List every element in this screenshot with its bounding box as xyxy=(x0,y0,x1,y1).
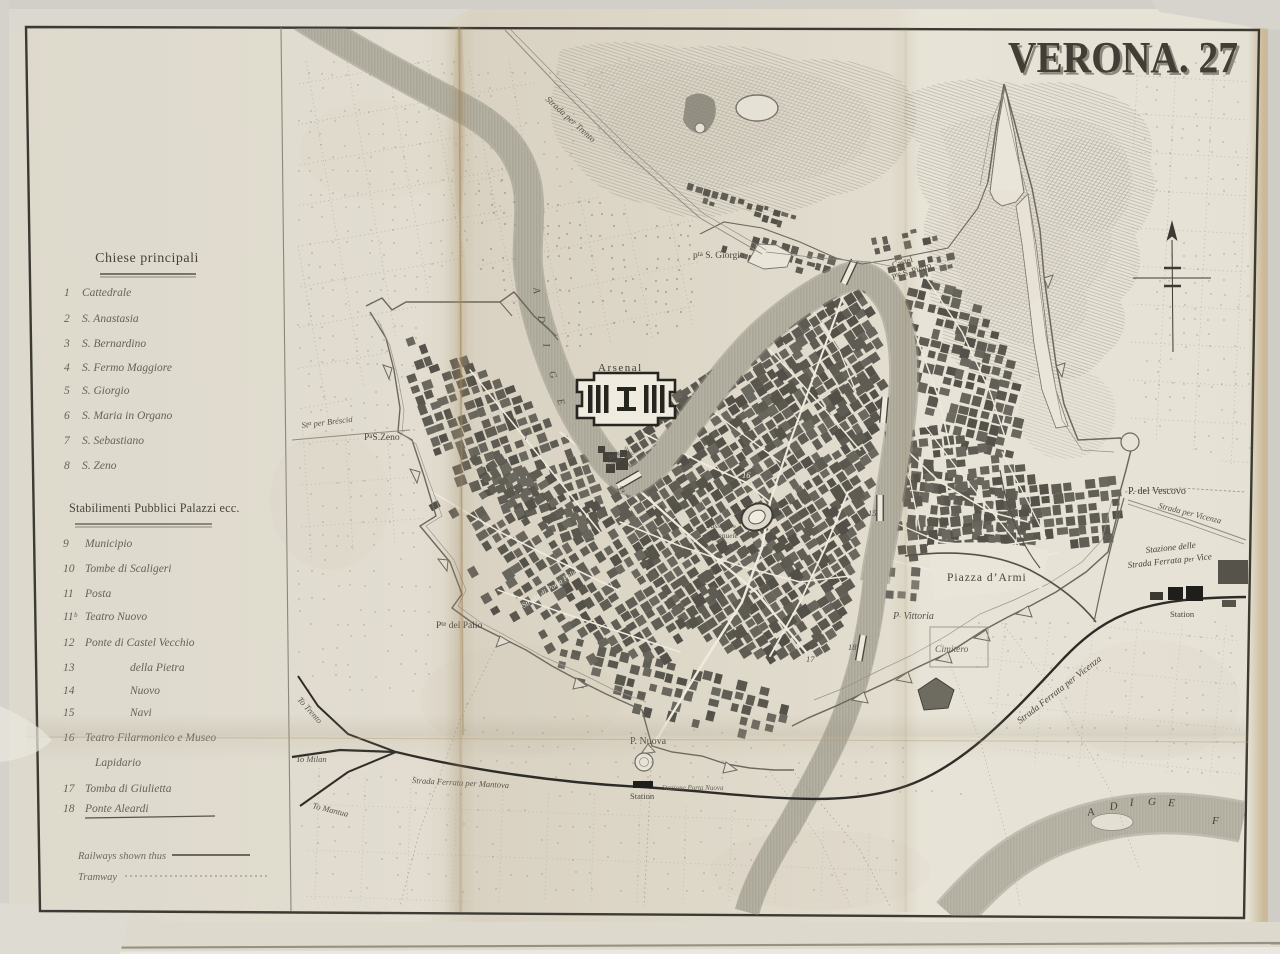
svg-text:Municipio: Municipio xyxy=(84,538,133,550)
svg-text:18: 18 xyxy=(848,642,857,652)
svg-text:18: 18 xyxy=(63,803,75,815)
svg-text:3: 3 xyxy=(63,338,70,350)
svg-text:Stabilimenti Pubblici Palazzi: Stabilimenti Pubblici Palazzi ecc. xyxy=(69,501,240,515)
svg-text:Stazione Porta Nuova: Stazione Porta Nuova xyxy=(662,784,724,792)
svg-text:S. Giorgio: S. Giorgio xyxy=(82,385,130,397)
svg-text:Chiese principali: Chiese principali xyxy=(95,251,199,266)
svg-text:Tomba di Giulietta: Tomba di Giulietta xyxy=(85,783,172,795)
svg-text:16: 16 xyxy=(742,470,751,480)
svg-text:Station: Station xyxy=(630,791,655,801)
svg-text:17: 17 xyxy=(806,654,815,664)
svg-text:1: 1 xyxy=(64,287,70,299)
svg-text:5: 5 xyxy=(64,385,70,397)
svg-text:Cattedrale: Cattedrale xyxy=(82,287,131,299)
svg-text:Emanuele: Emanuele xyxy=(707,531,739,540)
svg-text:Arsenal: Arsenal xyxy=(598,362,643,374)
svg-text:P. del Vescovo: P. del Vescovo xyxy=(1128,486,1186,497)
svg-text:S. Maria in Organo: S. Maria in Organo xyxy=(82,410,173,422)
svg-text:Cimitero: Cimitero xyxy=(935,645,969,655)
svg-text:S. Sebastiano: S. Sebastiano xyxy=(82,435,144,447)
svg-text:9: 9 xyxy=(63,538,69,550)
svg-text:14: 14 xyxy=(63,685,75,697)
svg-text:D: D xyxy=(1108,800,1118,813)
svg-text:Posta: Posta xyxy=(84,588,111,600)
svg-text:G: G xyxy=(1148,796,1156,808)
svg-text:S. Zeno: S. Zeno xyxy=(82,460,117,472)
svg-text:4: 4 xyxy=(64,362,70,374)
svg-text:2: 2 xyxy=(64,313,70,325)
svg-text:S. Fermo Maggiore: S. Fermo Maggiore xyxy=(82,362,172,374)
svg-text:17: 17 xyxy=(63,783,76,795)
svg-text:Nuovo: Nuovo xyxy=(129,685,160,697)
svg-text:Teatro Nuovo: Teatro Nuovo xyxy=(85,611,147,623)
svg-text:S. Bernardino: S. Bernardino xyxy=(82,338,146,350)
svg-text:Tramway: Tramway xyxy=(78,872,117,883)
svg-text:VERONA. 27: VERONA. 27 xyxy=(1008,33,1238,82)
svg-text:10: 10 xyxy=(63,563,75,575)
svg-text:Ponte di Castel Vecchio: Ponte di Castel Vecchio xyxy=(84,637,195,649)
svg-text:Station: Station xyxy=(1170,609,1195,619)
svg-text:11: 11 xyxy=(63,588,74,600)
svg-text:F: F xyxy=(1211,815,1219,827)
svg-text:13: 13 xyxy=(63,662,75,674)
svg-text:Tombe di Scaligeri: Tombe di Scaligeri xyxy=(85,563,171,575)
svg-text:Ponte Aleardi: Ponte Aleardi xyxy=(84,803,149,815)
svg-text:S. Anastasia: S. Anastasia xyxy=(82,313,139,325)
svg-text:della Pietra: della Pietra xyxy=(130,662,185,674)
svg-text:11ᵇ: 11ᵇ xyxy=(63,611,78,623)
svg-text:15: 15 xyxy=(868,508,877,518)
svg-text:Railways shown thus: Railways shown thus xyxy=(77,851,166,862)
svg-text:E: E xyxy=(1167,797,1176,809)
svg-text:Piazza d’Armi: Piazza d’Armi xyxy=(947,572,1027,584)
svg-text:6: 6 xyxy=(64,410,70,422)
svg-text:12: 12 xyxy=(63,637,75,649)
svg-text:8: 8 xyxy=(64,460,70,472)
svg-text:14: 14 xyxy=(870,412,879,422)
